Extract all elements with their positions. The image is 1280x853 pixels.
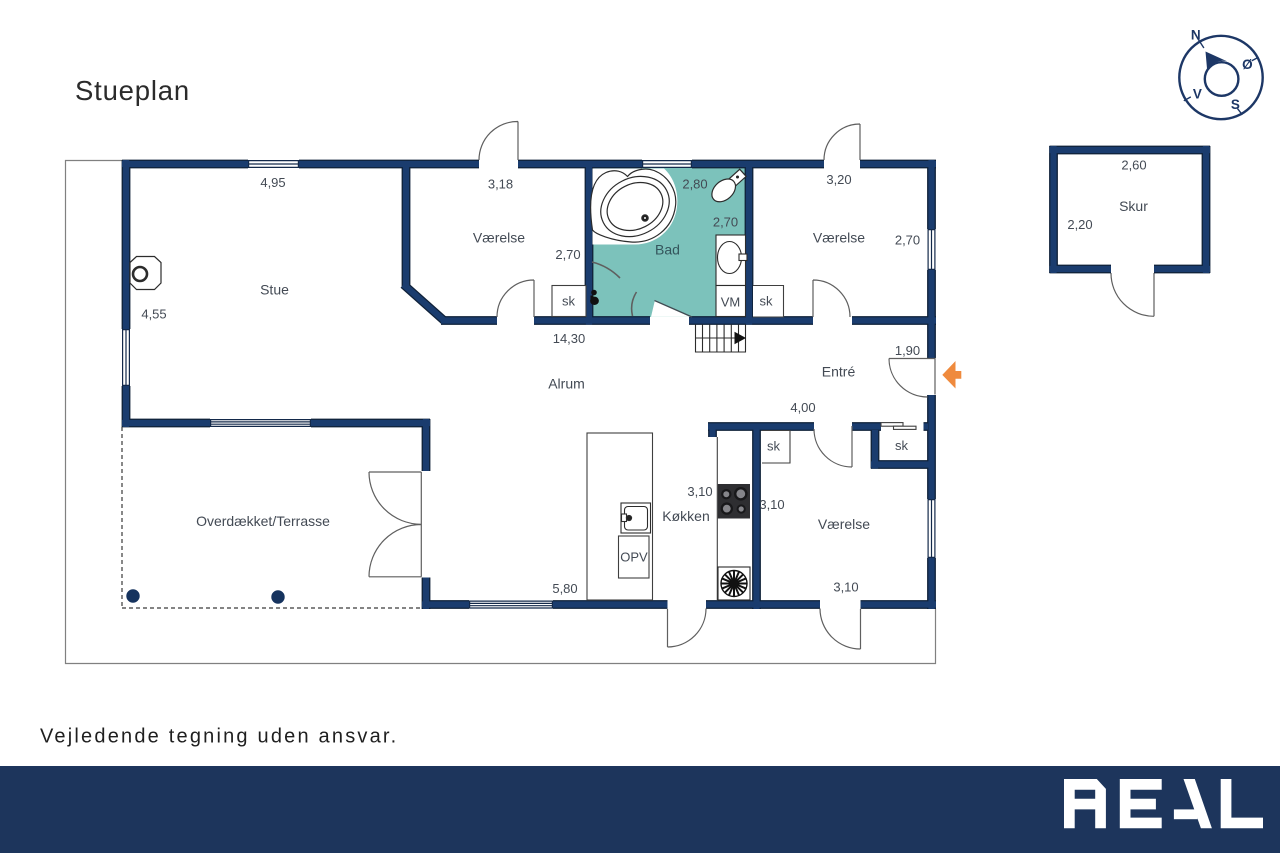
- svg-text:sk: sk: [562, 294, 576, 309]
- svg-text:4,00: 4,00: [790, 400, 815, 415]
- svg-text:4,55: 4,55: [141, 307, 166, 322]
- svg-text:2,70: 2,70: [713, 215, 738, 230]
- svg-text:5,80: 5,80: [552, 581, 577, 596]
- svg-text:Værelse: Værelse: [473, 230, 525, 246]
- svg-text:3,10: 3,10: [687, 484, 712, 499]
- svg-text:2,70: 2,70: [555, 247, 580, 262]
- svg-text:sk: sk: [760, 294, 774, 309]
- svg-text:2,20: 2,20: [1067, 217, 1092, 232]
- svg-text:2,60: 2,60: [1121, 158, 1146, 173]
- svg-text:V: V: [1193, 87, 1202, 102]
- svg-text:Alrum: Alrum: [548, 376, 585, 392]
- svg-text:OPV: OPV: [620, 550, 648, 565]
- svg-text:4,95: 4,95: [260, 175, 285, 190]
- svg-text:1,90: 1,90: [895, 343, 920, 358]
- svg-text:3,18: 3,18: [488, 177, 513, 192]
- svg-text:2,70: 2,70: [895, 233, 920, 248]
- svg-text:Stueplan: Stueplan: [75, 75, 190, 106]
- svg-text:Vejledende tegning uden ansvar: Vejledende tegning uden ansvar.: [40, 726, 398, 748]
- svg-text:sk: sk: [895, 438, 909, 453]
- svg-text:N: N: [1191, 28, 1201, 43]
- svg-text:Værelse: Værelse: [813, 230, 865, 246]
- svg-text:VM: VM: [721, 295, 741, 310]
- svg-text:3,10: 3,10: [759, 497, 784, 512]
- svg-text:Ø: Ø: [1242, 57, 1253, 72]
- svg-text:3,20: 3,20: [826, 172, 851, 187]
- svg-text:14,30: 14,30: [553, 331, 586, 346]
- svg-text:Køkken: Køkken: [662, 508, 709, 524]
- svg-text:Bad: Bad: [655, 242, 680, 258]
- svg-text:S: S: [1231, 97, 1240, 112]
- svg-text:Overdækket/Terrasse: Overdækket/Terrasse: [196, 513, 330, 529]
- svg-text:3,10: 3,10: [833, 580, 858, 595]
- svg-text:sk: sk: [767, 439, 781, 454]
- svg-text:Skur: Skur: [1119, 198, 1148, 214]
- svg-text:Entré: Entré: [822, 364, 856, 380]
- svg-text:Værelse: Værelse: [818, 516, 870, 532]
- svg-text:Stue: Stue: [260, 282, 289, 298]
- svg-text:2,80: 2,80: [682, 177, 707, 192]
